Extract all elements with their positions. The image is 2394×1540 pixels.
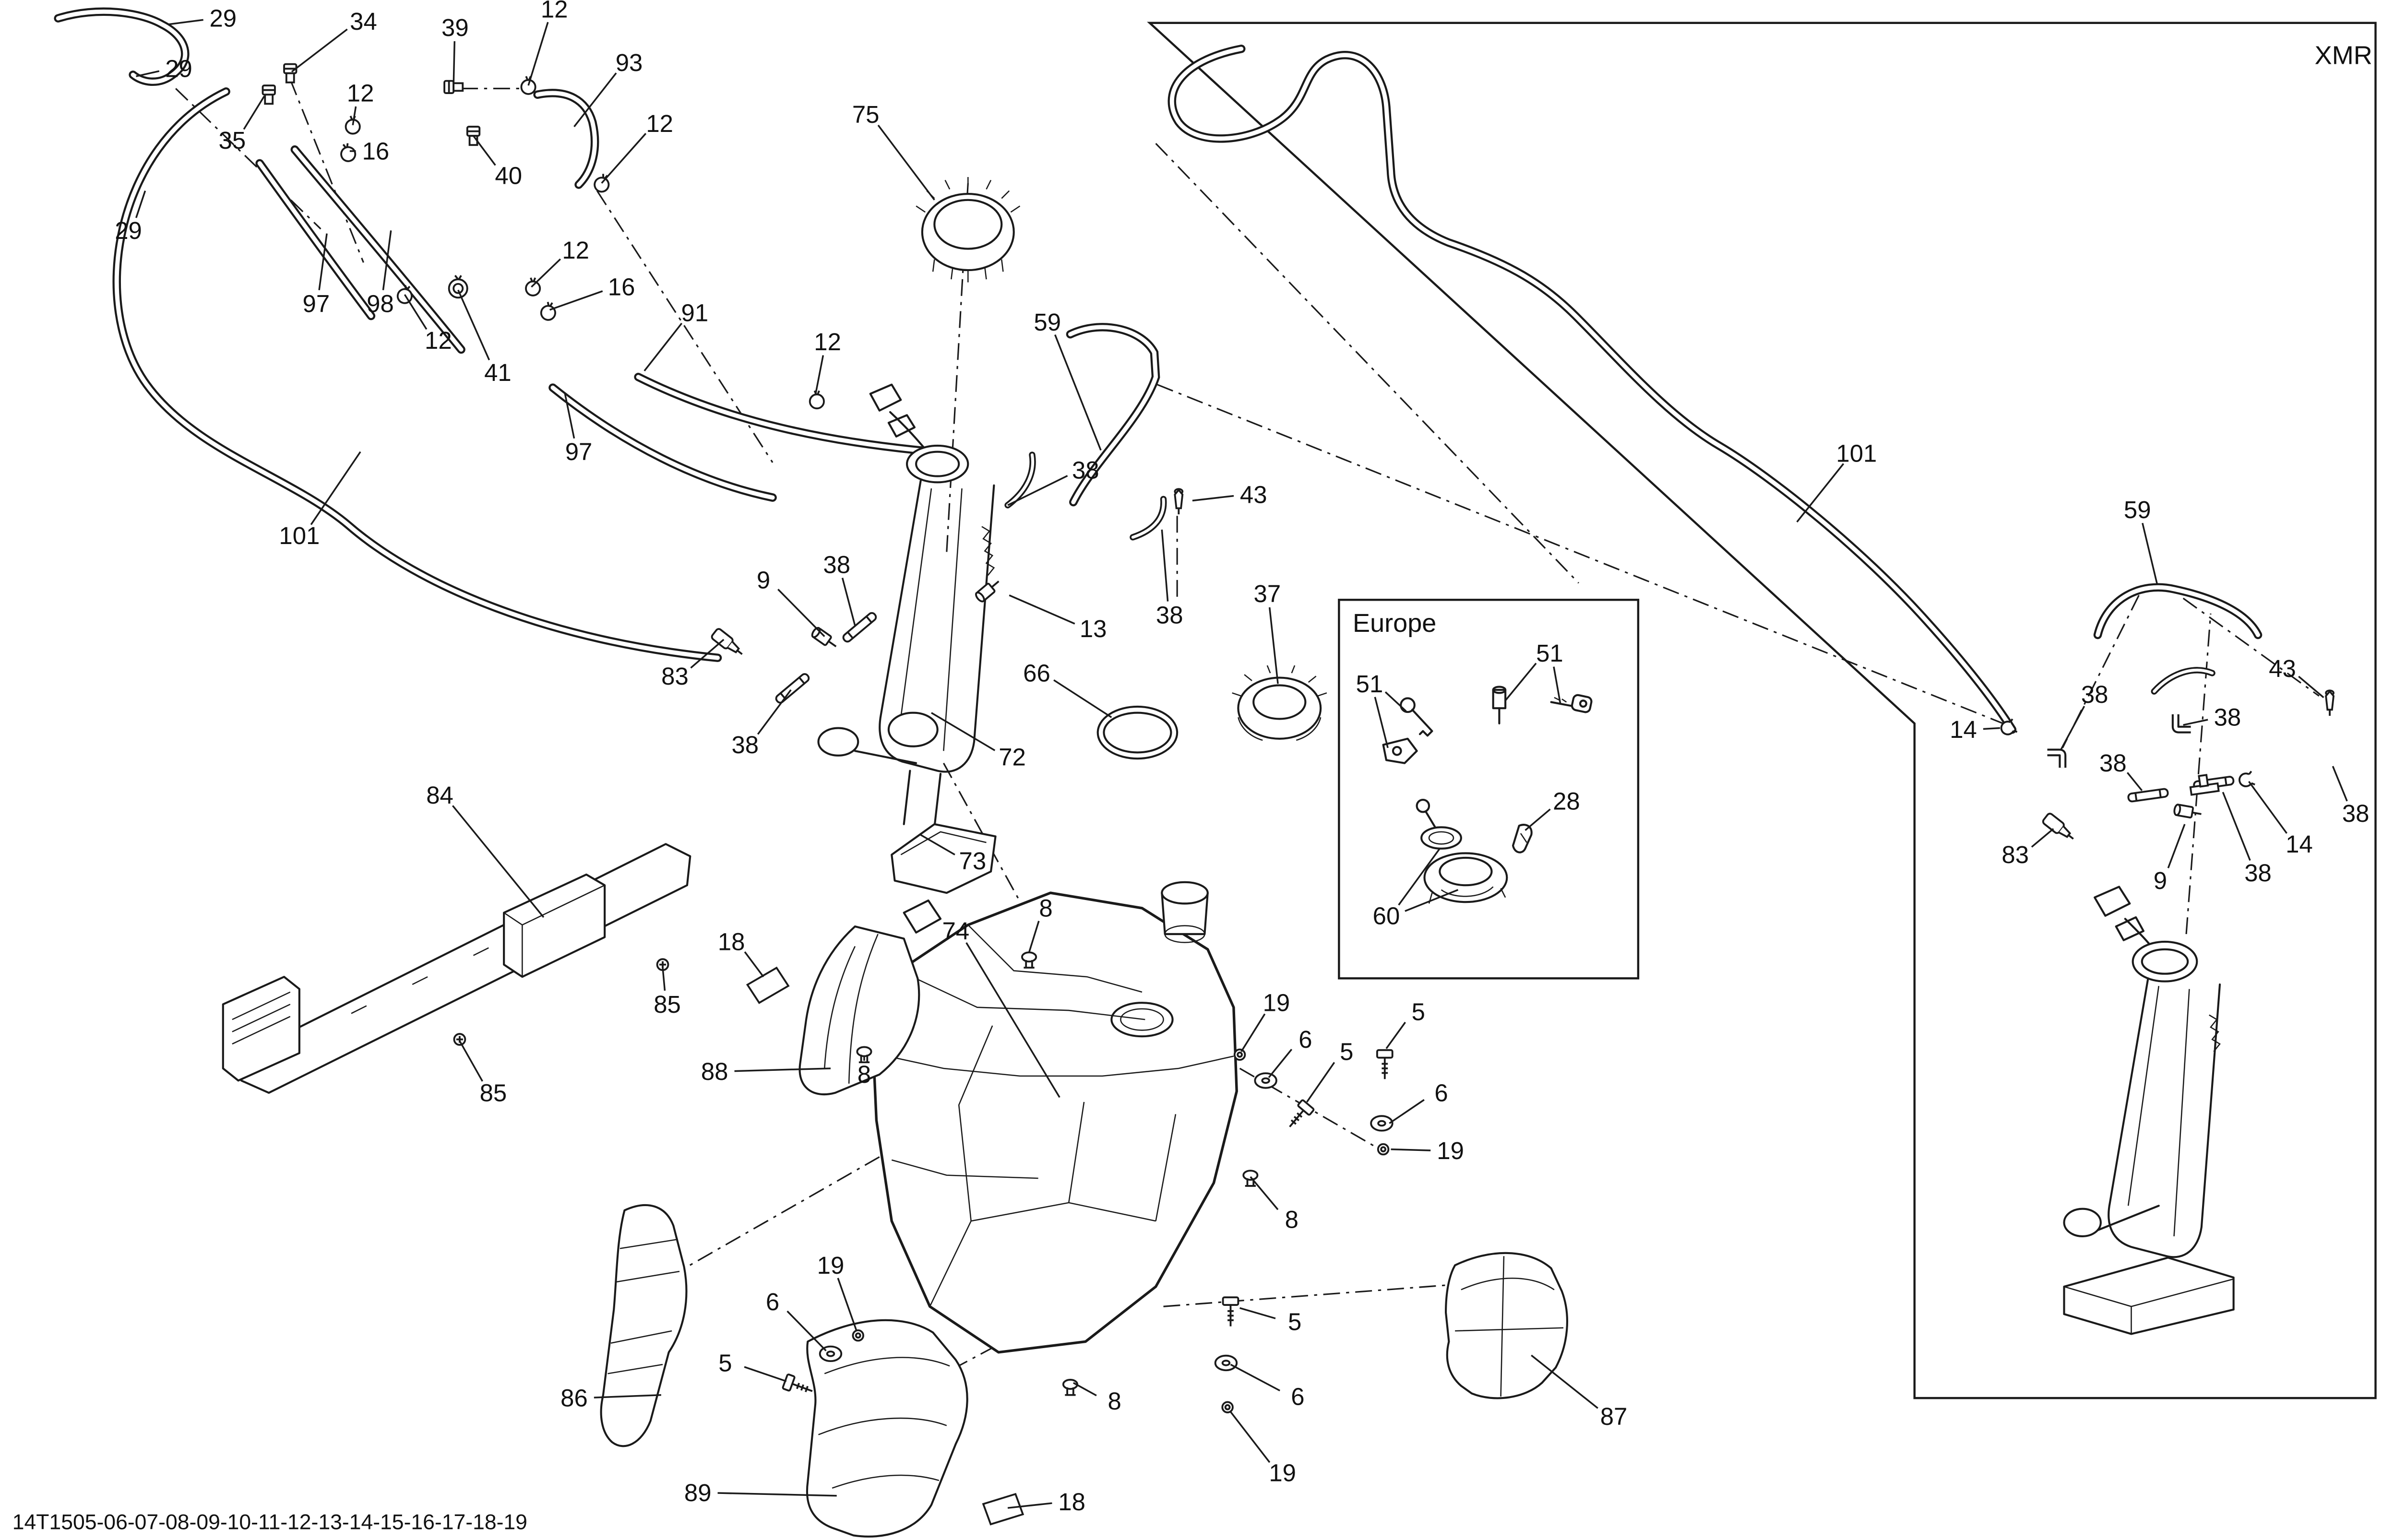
callout-leader-line	[2127, 772, 2142, 791]
callout-number: 5	[1288, 1308, 1301, 1336]
callout-leader-line	[1009, 595, 1075, 624]
callout-number: 75	[852, 101, 880, 128]
callout-85: 85	[654, 968, 681, 1018]
callout-5: 5	[1386, 998, 1425, 1049]
callout-leader-line	[931, 713, 995, 751]
callout-91: 91	[644, 299, 708, 371]
callout-number: 35	[219, 127, 246, 154]
callout-number: 5	[718, 1349, 732, 1376]
callout-number: 13	[1080, 615, 1107, 642]
fuel-line-101-left	[117, 92, 717, 658]
callout-19: 19	[1241, 989, 1290, 1052]
callout-number: 29	[165, 55, 192, 83]
callout-13: 13	[1009, 595, 1107, 642]
callout-leader-line	[1391, 1149, 1431, 1150]
callout-leader-line	[2061, 706, 2084, 749]
fuel-cap-75	[916, 177, 1020, 283]
part-grommet-icon	[1063, 1380, 1077, 1395]
callout-12: 12	[602, 110, 673, 183]
callout-leader-line	[838, 1278, 857, 1331]
callout-number: 101	[279, 522, 320, 549]
part-clamp-icon	[810, 391, 824, 408]
callout-number: 84	[426, 782, 453, 809]
callout-19: 19	[1230, 1412, 1296, 1487]
part-port-icon	[975, 577, 1002, 603]
part-plate-icon	[983, 1493, 1024, 1525]
part-fit-icon	[263, 85, 275, 104]
parts-diagram-canvas: XMR Europe	[0, 0, 2394, 1540]
hose-38-pump	[1008, 455, 1033, 505]
callout-number: 29	[209, 5, 237, 32]
part-sensor-icon	[2042, 812, 2077, 843]
callout-number: 5	[1412, 998, 1425, 1026]
part-clamp-icon	[339, 142, 357, 163]
callout-number: 59	[1034, 308, 1061, 336]
callout-19: 19	[817, 1252, 857, 1331]
callout-number: 8	[1285, 1206, 1298, 1233]
callout-number: 39	[441, 14, 469, 41]
callout-6: 6	[1389, 1079, 1448, 1123]
callout-number: 97	[303, 290, 330, 318]
callout-number: 14	[2286, 830, 2313, 858]
callout-leader-line	[1054, 680, 1111, 718]
callout-number: 29	[115, 217, 142, 244]
part-elbow-icon	[2048, 752, 2063, 768]
callout-5: 5	[718, 1349, 786, 1381]
callout-38: 38	[823, 551, 855, 626]
callout-number: 51	[1536, 640, 1563, 667]
callout-leader-line	[1055, 335, 1101, 450]
callout-leader-line	[292, 29, 347, 72]
part-washer-icon	[1371, 1116, 1393, 1131]
callout-leader-line	[1797, 464, 1844, 522]
callout-number: 38	[2099, 749, 2127, 777]
callout-number: 66	[1023, 659, 1050, 687]
callout-83: 83	[661, 640, 724, 690]
callout-41: 41	[458, 290, 512, 386]
callout-number: 51	[1356, 670, 1383, 698]
callout-number: 12	[814, 328, 841, 355]
callout-8: 8	[1073, 1383, 1121, 1415]
callout-number: 38	[2081, 681, 2108, 708]
callout-59: 59	[2124, 496, 2157, 584]
drawing-number: 14T1505-06-07-08-09-10-11-12-13-14-15-16…	[12, 1511, 527, 1534]
callout-leader-line	[1230, 1412, 1269, 1462]
part-tube-icon	[2128, 789, 2168, 802]
callout-number: 83	[661, 663, 689, 690]
callout-number: 85	[480, 1079, 507, 1106]
callout-number: 19	[1437, 1137, 1464, 1164]
callout-6: 6	[1269, 1026, 1312, 1078]
callout-16: 16	[550, 273, 635, 310]
callout-87: 87	[1531, 1355, 1627, 1430]
xmr-region: XMR	[1150, 23, 2376, 1398]
projection-lines	[176, 79, 2319, 1416]
callout-number: 43	[1240, 481, 1267, 508]
callout-number: 12	[562, 237, 589, 264]
callout-leader-line	[2183, 720, 2208, 725]
callout-number: 12	[347, 80, 374, 107]
callout-leader-line	[531, 259, 560, 287]
callout-number: 16	[362, 137, 390, 165]
callout-number: 28	[1553, 788, 1580, 815]
callout-leader-line	[1251, 1177, 1278, 1209]
callout-number: 101	[1836, 439, 1877, 467]
callout-leader-line	[1389, 1100, 1424, 1123]
callout-number: 9	[2154, 867, 2167, 894]
callout-16: 16	[350, 137, 389, 165]
callout-8: 8	[858, 1056, 871, 1089]
callout-number: 12	[425, 327, 452, 354]
callout-19: 19	[1391, 1137, 1464, 1164]
callout-43: 43	[2269, 655, 2323, 698]
callout-leader-line	[2143, 523, 2157, 584]
callout-number: 41	[484, 359, 512, 386]
callout-leader-line	[815, 355, 823, 395]
callout-leader-line	[644, 323, 682, 371]
callout-51: 51	[1356, 670, 1406, 748]
callout-number: 73	[959, 847, 987, 875]
part-tube-icon	[774, 673, 810, 704]
callout-number: 87	[1600, 1403, 1628, 1430]
callout-leader-line	[2223, 792, 2250, 860]
callout-leader-line	[843, 578, 855, 626]
callout-38: 38	[2183, 704, 2241, 731]
callout-leader-line	[2032, 829, 2053, 847]
callout-leader-line	[1241, 1014, 1265, 1052]
part-tube-icon	[842, 612, 877, 643]
callout-number: 38	[2342, 800, 2370, 827]
cover-87	[1446, 1253, 1567, 1398]
callout-leader-line	[2299, 676, 2323, 698]
part-plate-icon	[746, 967, 790, 1004]
callout-9: 9	[2154, 824, 2185, 894]
callout-number: 88	[701, 1058, 728, 1085]
callout-number: 6	[1291, 1383, 1304, 1410]
callout-12: 12	[814, 328, 841, 395]
callout-number: 6	[1298, 1026, 1312, 1053]
callout-number: 74	[942, 917, 970, 945]
callout-number: 34	[350, 8, 377, 35]
callout-number: 9	[757, 566, 770, 593]
callout-leader-line	[1240, 1308, 1275, 1318]
callout-number: 12	[646, 110, 673, 137]
callout-number: 18	[718, 928, 745, 955]
seal-ring-66	[1098, 707, 1177, 758]
part-bolt-icon	[1223, 1297, 1239, 1326]
callout-leader-line	[1505, 663, 1536, 701]
callout-leader-line	[2168, 824, 2184, 868]
callout-leader-line	[1525, 809, 1550, 830]
callout-leader-line	[1162, 530, 1167, 602]
callout-leader-line	[778, 589, 824, 636]
part-clamp-icon	[540, 301, 557, 321]
callout-34: 34	[292, 8, 377, 71]
callout-leader-line	[528, 22, 548, 85]
callout-5: 5	[1307, 1038, 1354, 1102]
callout-leader-line	[744, 1367, 786, 1381]
callout-leader-line	[1270, 607, 1278, 684]
callout-39: 39	[441, 14, 469, 85]
callout-84: 84	[426, 782, 544, 917]
callout-number: 6	[1434, 1079, 1448, 1106]
callout-leader-line	[602, 133, 646, 183]
callout-leader-line	[878, 125, 934, 200]
part-nut-icon	[1222, 1402, 1233, 1412]
callout-leader-line	[1307, 1062, 1334, 1102]
part-fit-icon	[284, 64, 296, 83]
callout-number: 5	[1340, 1038, 1353, 1065]
callout-leader-line	[663, 968, 665, 991]
callout-number: 91	[681, 299, 709, 327]
callout-leader-line	[460, 1041, 483, 1081]
callout-leader-line	[453, 41, 454, 85]
callout-40: 40	[474, 136, 522, 189]
part-valve-icon	[1175, 489, 1182, 514]
hose-59-right	[2098, 587, 2258, 635]
callout-number: 38	[1072, 456, 1099, 484]
callout-number: 43	[2269, 655, 2296, 682]
support-bracket-84	[223, 844, 690, 1093]
callout-leader-line	[758, 690, 791, 734]
callout-leader-line	[550, 291, 603, 310]
callout-leader-line	[1375, 697, 1388, 748]
callout-5: 5	[1240, 1308, 1302, 1335]
callout-14: 14	[2249, 782, 2312, 858]
callout-leader-line	[1008, 476, 1068, 505]
callout-number: 38	[732, 731, 759, 758]
callout-28: 28	[1525, 788, 1580, 830]
callout-number: 98	[367, 290, 394, 318]
callout-number: 86	[560, 1385, 588, 1412]
fuel-cap-37	[1232, 665, 1327, 740]
callout-leader-line	[745, 952, 763, 977]
callout-38: 38	[2061, 681, 2108, 749]
part-port-icon	[2174, 804, 2203, 819]
callout-number: 38	[1156, 602, 1183, 629]
callout-leader-line	[2249, 782, 2287, 833]
callout-leader-line	[1230, 1364, 1280, 1390]
callout-6: 6	[766, 1288, 826, 1350]
callout-leader-line	[1269, 1049, 1292, 1078]
callout-number: 93	[616, 49, 643, 76]
callout-number: 85	[654, 991, 681, 1018]
callout-29: 29	[168, 5, 237, 32]
callout-83: 83	[2001, 829, 2053, 868]
callouts-layer: 2929343912931235121640299798124112169112…	[115, 0, 2369, 1516]
callout-number: 8	[1108, 1387, 1121, 1415]
callout-9: 9	[757, 566, 824, 636]
callout-number: 6	[766, 1288, 779, 1315]
callout-12: 12	[531, 237, 589, 287]
callout-number: 97	[565, 438, 593, 465]
callout-38: 38	[2223, 792, 2271, 887]
hose-38-xmr	[2154, 670, 2212, 691]
callout-12: 12	[528, 0, 568, 85]
callout-6: 6	[1230, 1364, 1304, 1410]
cover-86	[601, 1205, 687, 1446]
xmr-region-border	[1150, 23, 2376, 1398]
callout-number: 89	[684, 1479, 712, 1506]
callout-38: 38	[1156, 530, 1183, 629]
xmr-region-label: XMR	[2315, 41, 2372, 70]
part-screw-icon	[454, 1034, 465, 1045]
part-washer-icon	[1215, 1356, 1237, 1371]
callout-leader-line	[2333, 766, 2347, 801]
callout-number: 72	[999, 743, 1026, 770]
part-bolt-icon	[783, 1374, 815, 1398]
callout-leader-line	[1192, 496, 1234, 501]
part-port-icon	[811, 627, 839, 651]
callout-leader-line	[168, 20, 203, 24]
callout-number: 38	[2244, 859, 2272, 887]
callout-8: 8	[1251, 1177, 1298, 1233]
callout-number: 83	[2001, 841, 2029, 868]
callout-number: 59	[2124, 496, 2151, 523]
fuel-tank-74	[873, 882, 1237, 1352]
hardware-layer	[263, 64, 2334, 1525]
callout-leader-line	[453, 806, 544, 917]
callout-number: 19	[1263, 989, 1290, 1017]
callout-number: 12	[541, 0, 568, 23]
callout-66: 66	[1023, 659, 1111, 717]
callout-leader-line	[244, 96, 264, 129]
callout-leader-line	[1386, 1022, 1405, 1049]
part-valve-icon	[2326, 690, 2334, 716]
callout-38: 38	[2333, 766, 2369, 827]
callout-number: 38	[823, 551, 850, 579]
part-clampl-icon	[449, 275, 467, 297]
callout-leader-line	[1073, 1383, 1096, 1396]
callout-43: 43	[1192, 481, 1267, 508]
callout-number: 14	[1950, 716, 1977, 743]
callout-18: 18	[718, 928, 763, 977]
callout-38: 38	[1008, 456, 1099, 505]
parts-drawings	[223, 177, 2234, 1537]
fuel-line-101-right	[1172, 49, 2012, 730]
callout-72: 72	[931, 713, 1026, 771]
europe-region-label: Europe	[1353, 609, 1436, 638]
elbow-hose-93	[537, 93, 595, 185]
callout-37: 37	[1254, 580, 1281, 684]
callout-number: 38	[2214, 704, 2241, 731]
callout-number: 60	[1373, 902, 1400, 929]
part-nut-icon	[1235, 1050, 1245, 1060]
part-washer-icon	[1255, 1073, 1276, 1088]
part-bolt-icon	[1284, 1100, 1314, 1132]
callout-51: 51	[1505, 640, 1563, 703]
callout-number: 8	[858, 1061, 871, 1088]
hose-38-center	[1133, 499, 1164, 537]
callout-93: 93	[574, 49, 643, 127]
callout-number: 8	[1039, 894, 1052, 922]
callout-leader-line	[1983, 728, 2000, 729]
callout-number: 40	[495, 162, 522, 189]
callout-75: 75	[852, 101, 934, 200]
filler-neck	[1162, 882, 1207, 943]
part-bolt-icon	[1377, 1050, 1393, 1079]
callout-85: 85	[460, 1041, 507, 1107]
callout-leader-line	[136, 71, 159, 76]
callout-35: 35	[219, 96, 264, 154]
callout-leader-line	[474, 136, 496, 165]
callout-38: 38	[2099, 749, 2142, 791]
callout-number: 19	[1269, 1459, 1296, 1487]
part-nut-icon	[1378, 1144, 1389, 1155]
callout-number: 18	[1058, 1488, 1085, 1516]
part-elbow-icon	[2176, 714, 2191, 730]
callout-number: 37	[1254, 580, 1281, 607]
fuel-pump-module-xmr	[2064, 887, 2234, 1334]
part-nut-icon	[853, 1330, 863, 1341]
callout-number: 19	[817, 1252, 845, 1279]
callout-number: 16	[608, 273, 635, 301]
